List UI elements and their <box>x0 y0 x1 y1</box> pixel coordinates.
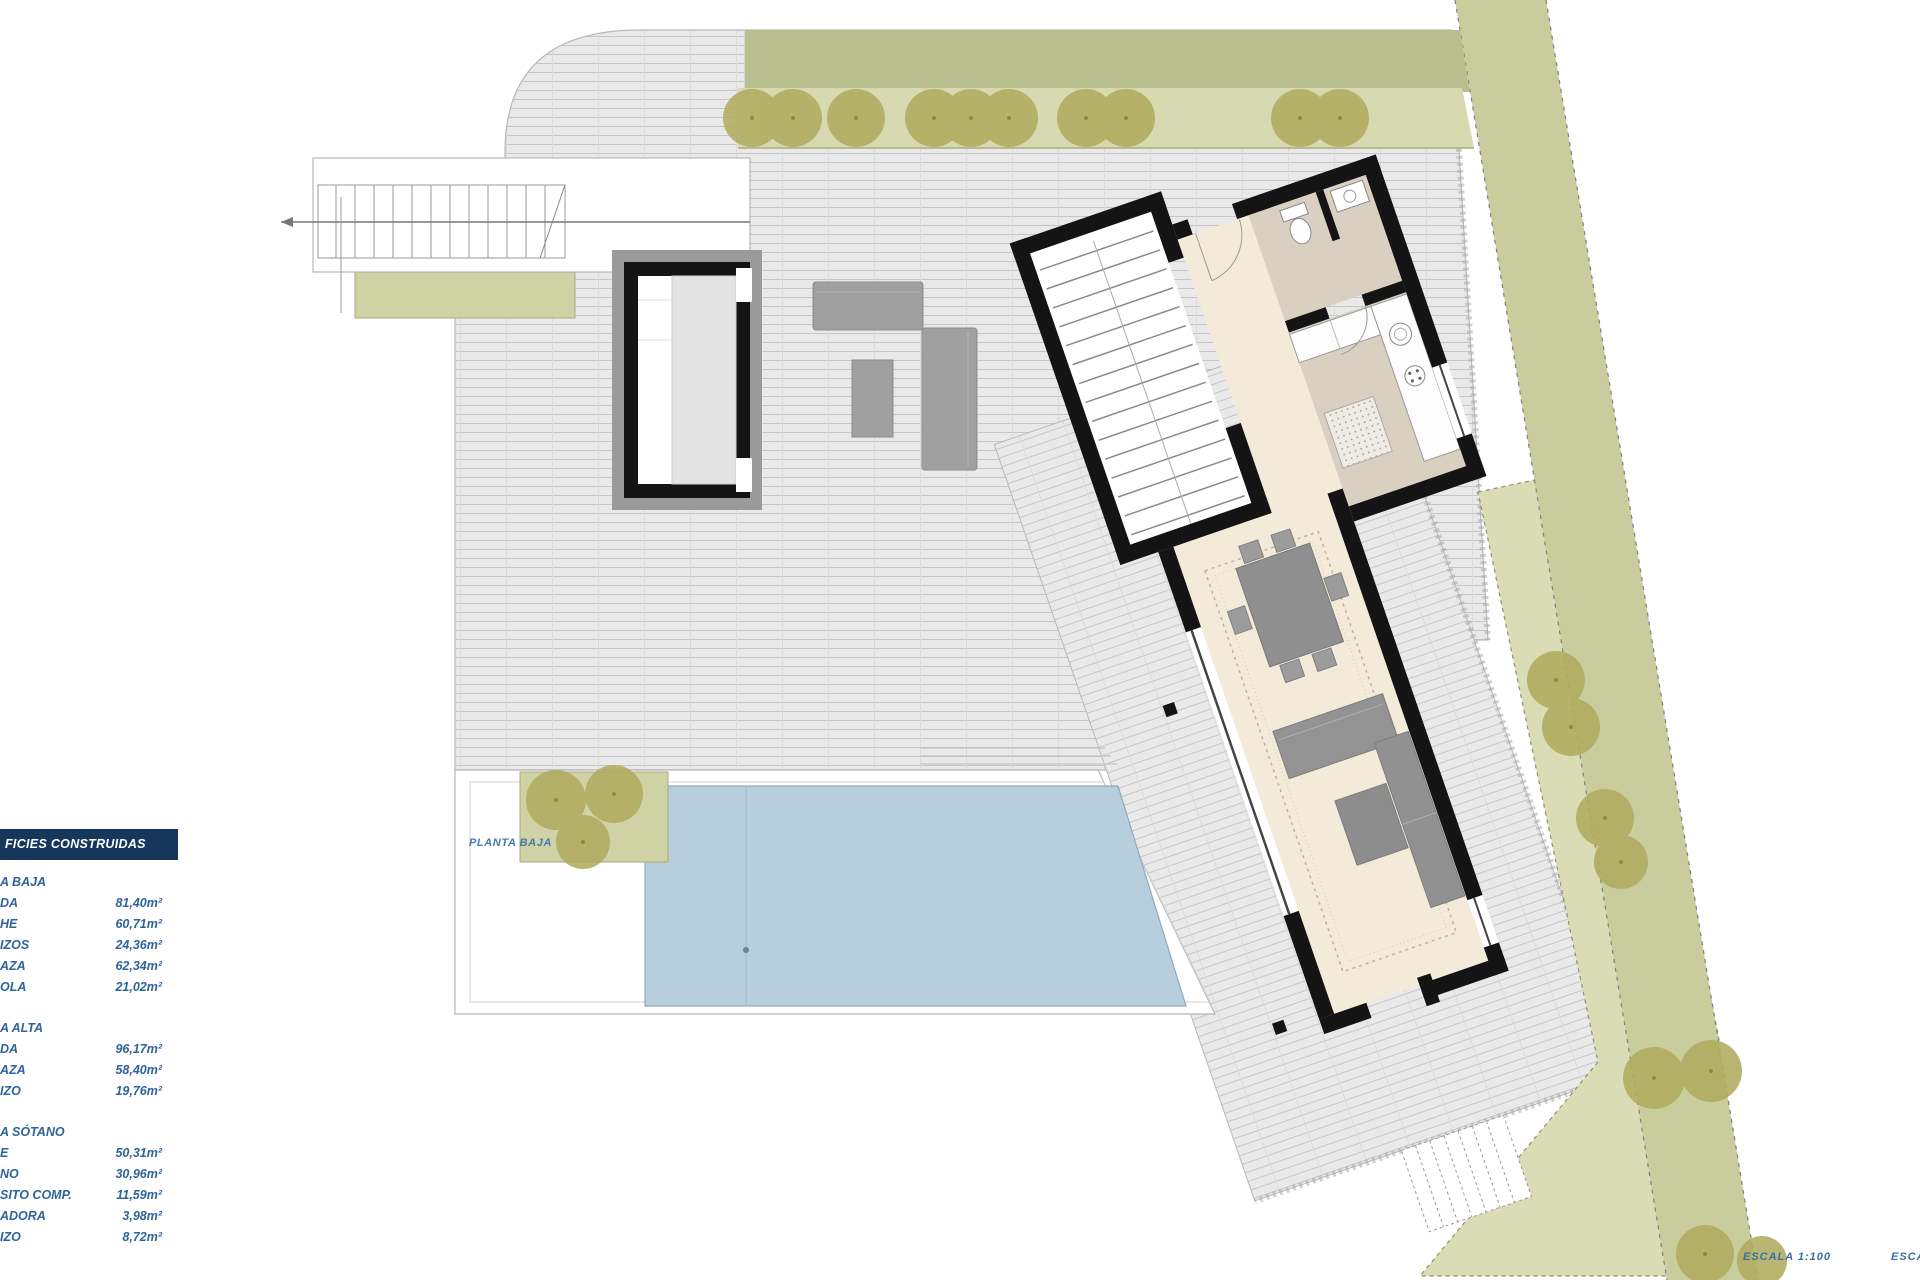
pool-drain <box>743 947 749 953</box>
floor-plan-drawing <box>0 0 1920 1280</box>
poolside-planter <box>520 765 668 869</box>
areas-section-planta-alta: A ALTA DA96,17m² AZA58,40m² IZO19,76m² <box>0 1018 178 1102</box>
swimming-pool <box>645 786 1186 1006</box>
area-row: ADORA3,98m² <box>0 1206 178 1227</box>
section-name: A SÓTANO <box>0 1122 178 1143</box>
scale-label-right-edge: ESCALA <box>1891 1251 1920 1263</box>
outdoor-sofa-horizontal <box>813 282 923 330</box>
structure-opening-bottom <box>736 458 752 492</box>
area-row: DA81,40m² <box>0 893 178 914</box>
planter-strip <box>355 272 575 318</box>
section-name: A BAJA <box>0 872 178 893</box>
areas-panel: FICIES CONSTRUIDAS A BAJA DA81,40m² HE60… <box>0 829 178 1268</box>
area-row: NO30,96m² <box>0 1164 178 1185</box>
area-row: E50,31m² <box>0 1143 178 1164</box>
structure-opening-top <box>736 268 752 302</box>
area-row: OLA21,02m² <box>0 977 178 998</box>
floor-plan-label: PLANTA BAJA <box>469 837 552 849</box>
area-row: SITO COMP.11,59m² <box>0 1185 178 1206</box>
area-row: IZO19,76m² <box>0 1081 178 1102</box>
areas-section-planta-sotano: A SÓTANO E50,31m² NO30,96m² SITO COMP.11… <box>0 1122 178 1248</box>
section-name: A ALTA <box>0 1018 178 1039</box>
areas-panel-title: FICIES CONSTRUIDAS <box>0 829 178 860</box>
outdoor-table <box>852 360 893 437</box>
area-row: AZA58,40m² <box>0 1060 178 1081</box>
rooftop-structure <box>612 250 762 510</box>
outdoor-sofa-vertical <box>922 328 977 470</box>
floor-plan-page: FICIES CONSTRUIDAS A BAJA DA81,40m² HE60… <box>0 0 1920 1280</box>
scale-label: ESCALA 1:100 <box>1743 1251 1831 1263</box>
areas-section-planta-baja: A BAJA DA81,40m² HE60,71m² IZOS24,36m² A… <box>0 872 178 998</box>
stair-arrow <box>281 217 293 227</box>
area-row: IZOS24,36m² <box>0 935 178 956</box>
area-row: IZO8,72m² <box>0 1227 178 1248</box>
area-row: HE60,71m² <box>0 914 178 935</box>
area-row: DA96,17m² <box>0 1039 178 1060</box>
top-garden-strip <box>723 30 1474 148</box>
area-row: AZA62,34m² <box>0 956 178 977</box>
